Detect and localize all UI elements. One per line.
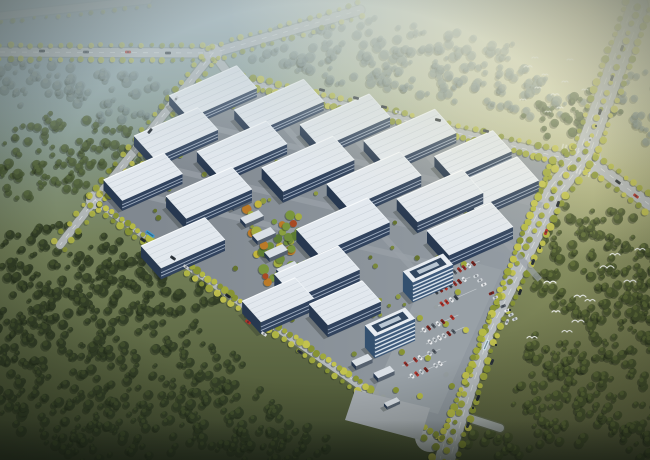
bottom-shade [0, 420, 650, 460]
vignette [0, 0, 650, 460]
haze-vignette-layer [0, 0, 650, 460]
rendering-canvas [0, 0, 650, 460]
aerial-industrial-park-rendering [0, 0, 650, 460]
